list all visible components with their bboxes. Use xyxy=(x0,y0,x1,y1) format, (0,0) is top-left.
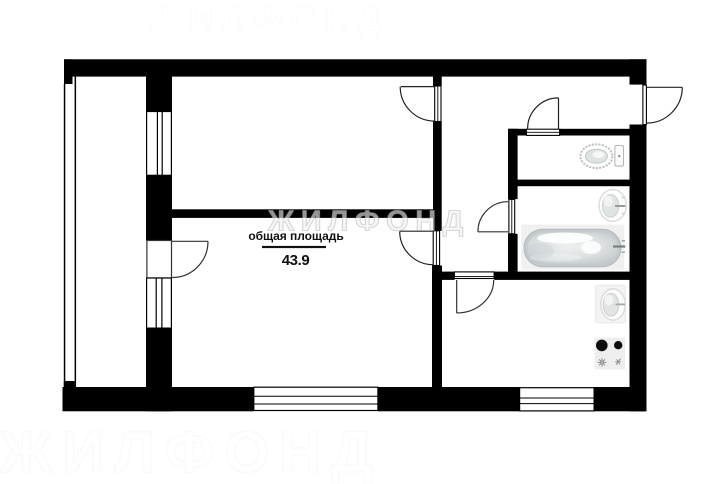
svg-text:43.9: 43.9 xyxy=(282,252,310,269)
svg-text:ЖИЛФОНД: ЖИЛФОНД xyxy=(149,0,389,38)
svg-text:ЖИЛФОНД: ЖИЛФОНД xyxy=(0,420,383,484)
svg-text:общая площадь: общая площадь xyxy=(248,229,343,243)
